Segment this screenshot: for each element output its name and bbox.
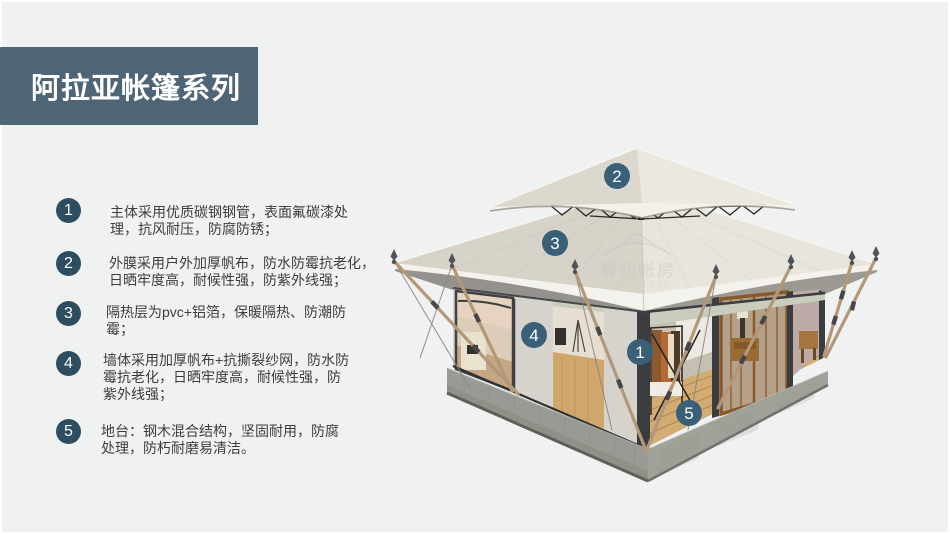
svg-text:1: 1 — [635, 343, 644, 362]
svg-text:4: 4 — [529, 326, 538, 345]
svg-text:雪利帐房: 雪利帐房 — [600, 260, 676, 280]
svg-text:3: 3 — [550, 234, 559, 253]
svg-text:2: 2 — [612, 167, 621, 186]
svg-text:5: 5 — [684, 404, 693, 423]
svg-text:XUELI TENT: XUELI TENT — [605, 280, 671, 289]
